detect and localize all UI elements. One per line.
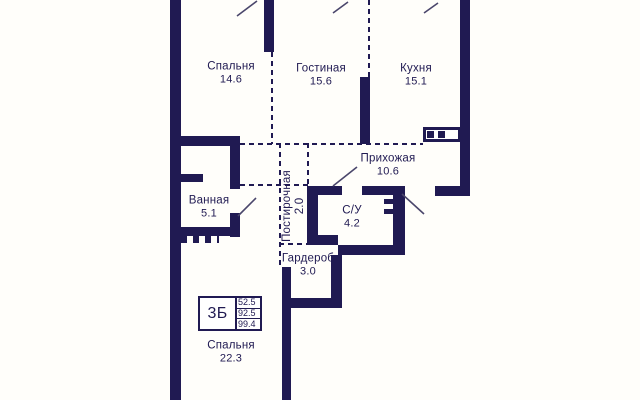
window-swing-line bbox=[333, 2, 348, 13]
room-label-kitchen: Кухня 15.1 bbox=[400, 63, 432, 88]
room-name: Ванная bbox=[189, 195, 230, 208]
room-name: С/У bbox=[342, 205, 361, 218]
room-label-bedroom2: Спальня 22.3 bbox=[207, 340, 255, 365]
flat-area-total: 99.4 bbox=[237, 319, 260, 329]
room-name: Кухня bbox=[400, 63, 432, 76]
door-swing-line bbox=[333, 167, 357, 186]
flat-area-heated: 92.5 bbox=[237, 309, 260, 320]
room-area: 15.1 bbox=[400, 75, 432, 88]
door-swing-line bbox=[402, 194, 424, 214]
swing-lines-layer bbox=[0, 0, 640, 400]
room-area: 5.1 bbox=[189, 207, 230, 220]
room-name: Спальня bbox=[207, 340, 255, 353]
room-label-bathroom: Ванная 5.1 bbox=[189, 195, 230, 220]
window-swing-line bbox=[424, 3, 438, 13]
room-name: Гардероб bbox=[282, 253, 334, 266]
room-area: 14.6 bbox=[207, 73, 255, 86]
room-area: 10.6 bbox=[361, 165, 416, 178]
flat-type-label: 3Б bbox=[200, 298, 237, 329]
window-swing-line bbox=[237, 1, 257, 16]
room-name: Спальня bbox=[207, 61, 255, 74]
room-label-bedroom1: Спальня 14.6 bbox=[207, 61, 255, 86]
flat-stats-box: 3Б 52.5 92.5 99.4 bbox=[198, 296, 262, 331]
room-label-wardrobe: Гардероб 3.0 bbox=[282, 253, 334, 278]
floor-plan: Спальня 14.6 Гостиная 15.6 Кухня 15.1 Ва… bbox=[0, 0, 640, 400]
room-label-wc: С/У 4.2 bbox=[342, 205, 361, 230]
room-label-living: Гостиная 15.6 bbox=[296, 63, 346, 88]
room-name: Гостиная bbox=[296, 63, 346, 76]
flat-areas: 52.5 92.5 99.4 bbox=[237, 298, 260, 329]
room-name: Прихожая bbox=[361, 153, 416, 166]
room-area: 22.3 bbox=[207, 352, 255, 365]
room-area: 4.2 bbox=[342, 217, 361, 230]
room-area: 3.0 bbox=[282, 265, 334, 278]
room-label-hallway: Прихожая 10.6 bbox=[361, 153, 416, 178]
door-swing-line bbox=[238, 198, 256, 216]
room-area: 15.6 bbox=[296, 75, 346, 88]
